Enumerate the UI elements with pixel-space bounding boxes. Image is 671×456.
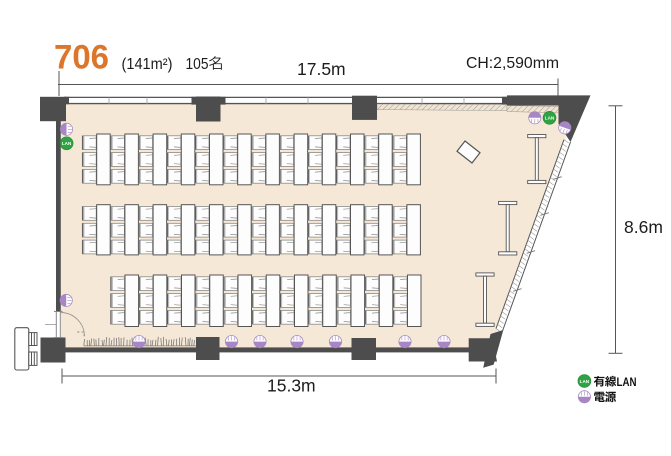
svg-text:LAN: LAN [617, 377, 637, 389]
svg-text:(141m²): (141m²) [122, 56, 173, 73]
svg-text:17.5m: 17.5m [297, 59, 346, 79]
svg-text:8.6m: 8.6m [624, 217, 663, 237]
svg-text:105: 105 [186, 56, 209, 73]
svg-text:CH:2,590mm: CH:2,590mm [466, 55, 559, 72]
svg-text:15.3m: 15.3m [267, 376, 316, 396]
svg-text:706: 706 [54, 39, 109, 77]
